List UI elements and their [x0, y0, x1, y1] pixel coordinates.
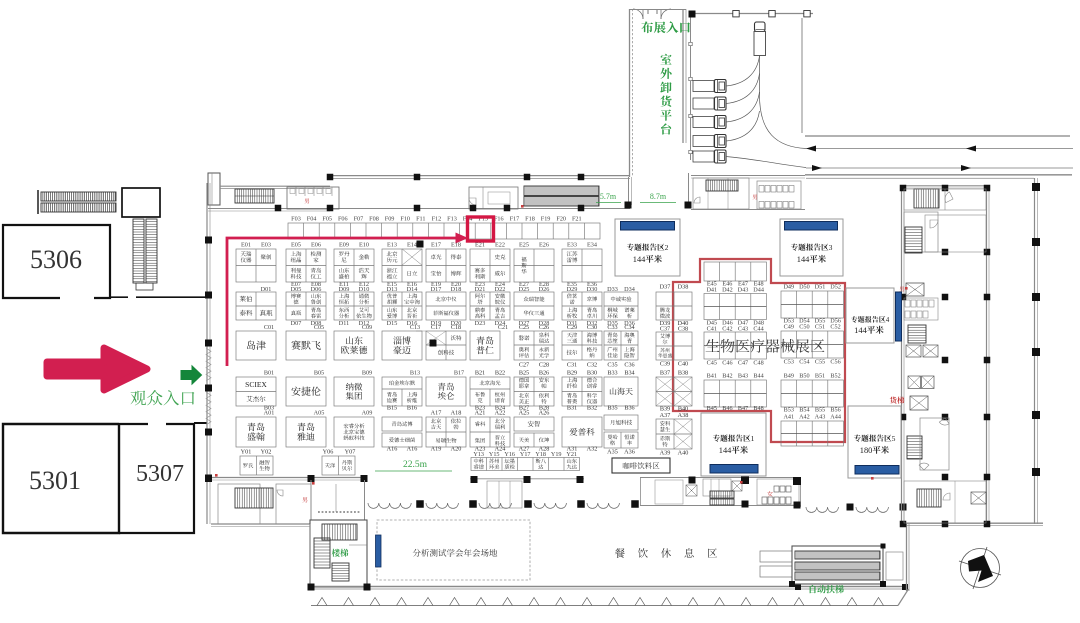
svg-text:Y15: Y15 — [489, 451, 500, 458]
svg-text:1: 1 — [751, 434, 755, 443]
svg-text:A40: A40 — [678, 450, 689, 457]
svg-text:B16: B16 — [407, 405, 417, 412]
svg-text:E17: E17 — [431, 242, 441, 249]
svg-text:Y01: Y01 — [241, 449, 252, 456]
svg-text:E05: E05 — [291, 242, 301, 249]
svg-text:B53: B53 — [784, 407, 794, 414]
svg-text:C30: C30 — [587, 324, 597, 331]
svg-text:C17: C17 — [431, 324, 441, 331]
svg-text:A16: A16 — [387, 446, 398, 453]
svg-text:A17: A17 — [431, 410, 442, 417]
svg-text:B51: B51 — [815, 373, 825, 380]
svg-text:B34: B34 — [624, 370, 634, 377]
svg-text:D44: D44 — [753, 287, 764, 294]
svg-text:A39: A39 — [660, 450, 671, 457]
svg-text:Y02: Y02 — [261, 449, 272, 456]
svg-text:C54: C54 — [799, 359, 809, 366]
svg-text:B29: B29 — [567, 370, 577, 377]
svg-text:B26: B26 — [539, 370, 549, 377]
svg-text:E06: E06 — [311, 242, 321, 249]
svg-text:A38: A38 — [678, 412, 689, 419]
svg-text:C45: C45 — [707, 360, 717, 367]
svg-text:B22: B22 — [495, 370, 505, 377]
svg-text:B49: B49 — [784, 373, 794, 380]
svg-text:C50: C50 — [799, 324, 809, 331]
svg-text:F08: F08 — [369, 216, 379, 223]
svg-text:C39: C39 — [660, 361, 670, 368]
svg-text:E33: E33 — [567, 242, 577, 249]
svg-text:A42: A42 — [799, 414, 810, 421]
svg-text:Y17: Y17 — [520, 451, 531, 458]
svg-text:144: 144 — [854, 325, 868, 335]
svg-text:C48: C48 — [753, 360, 763, 367]
svg-text:F20: F20 — [556, 216, 566, 223]
svg-text:E13: E13 — [387, 242, 397, 249]
svg-text:B01: B01 — [264, 370, 274, 377]
svg-text:SCIEX: SCIEX — [245, 380, 267, 389]
svg-text:5307: 5307 — [136, 461, 184, 487]
svg-text:B09: B09 — [362, 370, 372, 377]
svg-text:E21: E21 — [475, 242, 485, 249]
svg-text:Y13: Y13 — [473, 451, 484, 458]
svg-text:E09: E09 — [339, 242, 349, 249]
svg-text:C25: C25 — [519, 324, 529, 331]
svg-text:F09: F09 — [385, 216, 395, 223]
svg-text:B55: B55 — [815, 407, 825, 414]
svg-text:B17: B17 — [454, 370, 464, 377]
svg-text:C13: C13 — [410, 324, 420, 331]
svg-text:B05: B05 — [314, 370, 324, 377]
svg-text:A32: A32 — [587, 446, 598, 453]
svg-text:C42: C42 — [722, 326, 732, 333]
svg-text:22.5m: 22.5m — [403, 460, 428, 470]
svg-text:F19: F19 — [541, 216, 551, 223]
svg-text:Y07: Y07 — [345, 449, 356, 456]
svg-text:D23: D23 — [475, 320, 486, 327]
svg-text:D37: D37 — [660, 284, 671, 291]
svg-text:C27: C27 — [519, 362, 529, 369]
svg-text:Y18: Y18 — [535, 451, 546, 458]
svg-text:A09: A09 — [362, 410, 373, 417]
svg-text:E22: E22 — [495, 242, 505, 249]
svg-text:F06: F06 — [338, 216, 348, 223]
svg-text:B52: B52 — [830, 373, 840, 380]
svg-text:B36: B36 — [624, 405, 634, 412]
svg-text:B50: B50 — [799, 373, 809, 380]
svg-text:C49: C49 — [784, 324, 794, 331]
svg-text:F21: F21 — [572, 216, 582, 223]
svg-text:A01: A01 — [264, 410, 275, 417]
svg-text:C55: C55 — [815, 359, 825, 366]
svg-text:5: 5 — [892, 434, 896, 443]
svg-text:4: 4 — [886, 316, 890, 324]
svg-text:C40: C40 — [678, 361, 688, 368]
svg-text:D07: D07 — [291, 320, 302, 327]
svg-text:C51: C51 — [815, 324, 825, 331]
svg-text:E14: E14 — [407, 242, 417, 249]
svg-text:A36: A36 — [624, 449, 635, 456]
svg-text:A21: A21 — [475, 410, 486, 417]
svg-text:C36: C36 — [624, 362, 634, 369]
svg-text:D49: D49 — [783, 284, 794, 291]
svg-text:B56: B56 — [830, 407, 840, 414]
svg-text:144: 144 — [797, 255, 810, 264]
svg-text:B15: B15 — [387, 405, 397, 412]
svg-text:A25: A25 — [519, 410, 530, 417]
svg-text:D41: D41 — [706, 287, 717, 294]
svg-text:C35: C35 — [607, 362, 617, 369]
svg-text:B46: B46 — [722, 405, 732, 412]
svg-text:B44: B44 — [753, 373, 763, 380]
svg-text:A35: A35 — [607, 449, 618, 456]
svg-text:F03: F03 — [291, 216, 301, 223]
svg-text:E01: E01 — [241, 242, 251, 249]
svg-text:D15: D15 — [387, 320, 398, 327]
svg-text:B25: B25 — [519, 370, 529, 377]
svg-text:Y19: Y19 — [551, 451, 562, 458]
svg-text:C21: C21 — [498, 324, 508, 331]
svg-text:B48: B48 — [753, 405, 763, 412]
svg-text:B32: B32 — [587, 405, 597, 412]
svg-text:E10: E10 — [359, 242, 369, 249]
svg-text:F18: F18 — [525, 216, 535, 223]
svg-text:B43: B43 — [738, 373, 748, 380]
svg-text:F16: F16 — [494, 216, 504, 223]
svg-text:2: 2 — [665, 243, 669, 252]
svg-text:E25: E25 — [519, 242, 529, 249]
svg-text:B38: B38 — [678, 370, 688, 377]
svg-text:C33: C33 — [607, 324, 617, 331]
svg-text:D43: D43 — [738, 287, 749, 294]
svg-text:B31: B31 — [567, 405, 577, 412]
svg-text:A18: A18 — [451, 410, 462, 417]
svg-text:144: 144 — [719, 446, 732, 455]
svg-text:C29: C29 — [567, 324, 577, 331]
svg-text:D11: D11 — [339, 320, 349, 327]
svg-text:C34: C34 — [624, 324, 634, 331]
svg-text:C05: C05 — [314, 324, 324, 331]
svg-text:D52: D52 — [830, 284, 841, 291]
svg-text:5301: 5301 — [29, 466, 81, 495]
svg-text:A43: A43 — [815, 414, 826, 421]
svg-text:A44: A44 — [830, 414, 841, 421]
svg-text:E26: E26 — [539, 242, 549, 249]
svg-text:C46: C46 — [722, 360, 732, 367]
svg-text:B54: B54 — [799, 407, 809, 414]
svg-text:E03: E03 — [261, 242, 271, 249]
svg-text:C53: C53 — [784, 359, 794, 366]
svg-text:B30: B30 — [587, 370, 597, 377]
svg-text:C32: C32 — [587, 362, 597, 369]
svg-text:F17: F17 — [510, 216, 520, 223]
svg-text:C26: C26 — [539, 324, 549, 331]
svg-text:F10: F10 — [400, 216, 410, 223]
svg-text:D38: D38 — [678, 284, 689, 291]
svg-text:C41: C41 — [707, 326, 717, 333]
svg-text:F11: F11 — [416, 216, 425, 223]
svg-text:E34: E34 — [587, 242, 597, 249]
svg-text:A22: A22 — [495, 410, 506, 417]
svg-text:B47: B47 — [738, 405, 748, 412]
svg-text:5306: 5306 — [30, 245, 82, 274]
svg-text:180: 180 — [860, 446, 873, 455]
svg-text:A26: A26 — [539, 410, 550, 417]
svg-text:5.7m: 5.7m — [600, 192, 617, 201]
svg-text:B37: B37 — [660, 370, 670, 377]
svg-text:C44: C44 — [753, 326, 763, 333]
svg-text:B21: B21 — [475, 370, 485, 377]
svg-text:F12: F12 — [432, 216, 442, 223]
svg-text:C38: C38 — [678, 326, 688, 333]
svg-text:Y21: Y21 — [566, 451, 577, 458]
svg-text:C18: C18 — [451, 324, 461, 331]
svg-text:3: 3 — [829, 243, 833, 252]
svg-text:E18: E18 — [451, 242, 461, 249]
svg-text:D42: D42 — [722, 287, 733, 294]
svg-text:Y16: Y16 — [504, 451, 515, 458]
svg-text:D50: D50 — [799, 284, 810, 291]
svg-text:C37: C37 — [660, 326, 670, 333]
svg-text:F04: F04 — [307, 216, 317, 223]
svg-text:8.7m: 8.7m — [650, 192, 667, 201]
svg-text:F07: F07 — [354, 216, 364, 223]
svg-text:B35: B35 — [607, 405, 617, 412]
svg-text:C52: C52 — [830, 324, 840, 331]
svg-text:A19: A19 — [431, 446, 442, 453]
svg-text:A37: A37 — [660, 412, 671, 419]
svg-text:F13: F13 — [447, 216, 457, 223]
svg-text:C01: C01 — [264, 324, 274, 331]
svg-text:F05: F05 — [322, 216, 332, 223]
svg-text:D51: D51 — [815, 284, 826, 291]
svg-text:C56: C56 — [830, 359, 840, 366]
svg-text:B33: B33 — [607, 370, 617, 377]
svg-text:C47: C47 — [738, 360, 748, 367]
svg-text:B13: B13 — [410, 370, 420, 377]
svg-text:C31: C31 — [567, 362, 577, 369]
svg-text:144: 144 — [633, 255, 646, 264]
svg-text:A20: A20 — [451, 446, 462, 453]
svg-text:A16: A16 — [407, 446, 418, 453]
svg-text:B41: B41 — [707, 373, 717, 380]
svg-text:B45: B45 — [707, 405, 717, 412]
svg-text:B42: B42 — [722, 373, 732, 380]
svg-text:C43: C43 — [738, 326, 748, 333]
svg-text:Y06: Y06 — [323, 449, 334, 456]
svg-text:A41: A41 — [783, 414, 794, 421]
svg-text:C09: C09 — [362, 324, 372, 331]
svg-text:A05: A05 — [314, 410, 325, 417]
svg-text:C28: C28 — [539, 362, 549, 369]
